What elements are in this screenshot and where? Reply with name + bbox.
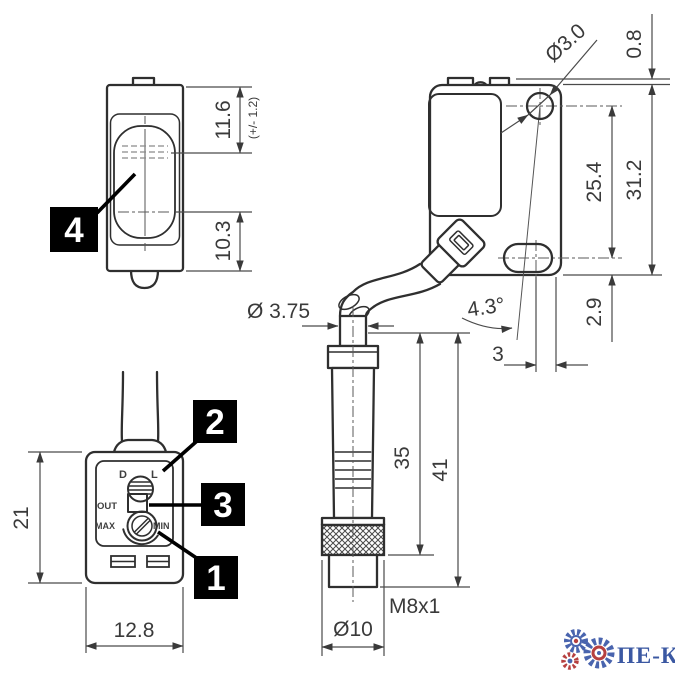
dim-3: 3 [492,343,504,366]
top-view: D L OUT MAX MIN 21 [10,372,245,653]
selector-label-d: D [119,469,127,481]
dim-12-8: 12.8 [114,619,155,642]
front-bottom-boss [131,270,158,288]
callout-2-number: 2 [205,403,224,442]
dim-11-6-tolerance: (+/- 1.2) [246,97,260,139]
cable-edge-left [340,264,420,316]
gears-icon [564,632,612,668]
dim-hole-diameter: Ø3.0 [541,19,590,67]
dim-plug-dia: Ø10 [333,618,373,641]
cable-strain-boss [114,440,166,452]
technical-drawing-page: 11.6 (+/- 1.2) 10.3 4 [0,0,675,675]
dim-25-4: 25.4 [583,161,606,202]
dim-41: 41 [429,458,452,481]
side-view: Ø3.0 0.8 31.2 25.4 2.9 3 4.3° [416,14,670,372]
cable-and-connector: Ø 3.75 35 41 Ø10 M8x1 [247,264,470,656]
cable-line-right [157,372,158,441]
watermark-logo: ПЕ-КО [564,632,675,668]
callout-4-number: 4 [64,211,84,250]
dim-10-3: 10.3 [212,221,235,262]
dim-31-2: 31.2 [623,160,646,201]
dim-4-3-deg: 4.3° [466,294,506,322]
dim-cable-dia: Ø 3.75 [247,300,310,323]
callout-3-number: 3 [213,486,232,525]
dim-0-8: 0.8 [623,29,646,58]
dim-11-6: 11.6 [212,100,235,139]
dim-2-9: 2.9 [583,297,606,326]
cable-line-left [122,372,123,441]
front-dimensions: 11.6 (+/- 1.2) 10.3 [171,87,260,271]
output-label: OUT [97,501,117,512]
pot-label-max: MAX [95,521,115,531]
cable-edge-right [366,284,440,316]
sensor-dimension-drawing: 11.6 (+/- 1.2) 10.3 4 [0,0,675,675]
watermark-brand-text: ПЕ-КО [617,643,675,668]
dim-21: 21 [10,506,33,529]
callout-1-number: 1 [206,559,225,598]
front-view: 11.6 (+/- 1.2) 10.3 4 [50,78,260,288]
dim-35: 35 [391,446,414,469]
thread-spec: M8x1 [389,595,440,618]
selector-label-l: L [151,469,158,481]
